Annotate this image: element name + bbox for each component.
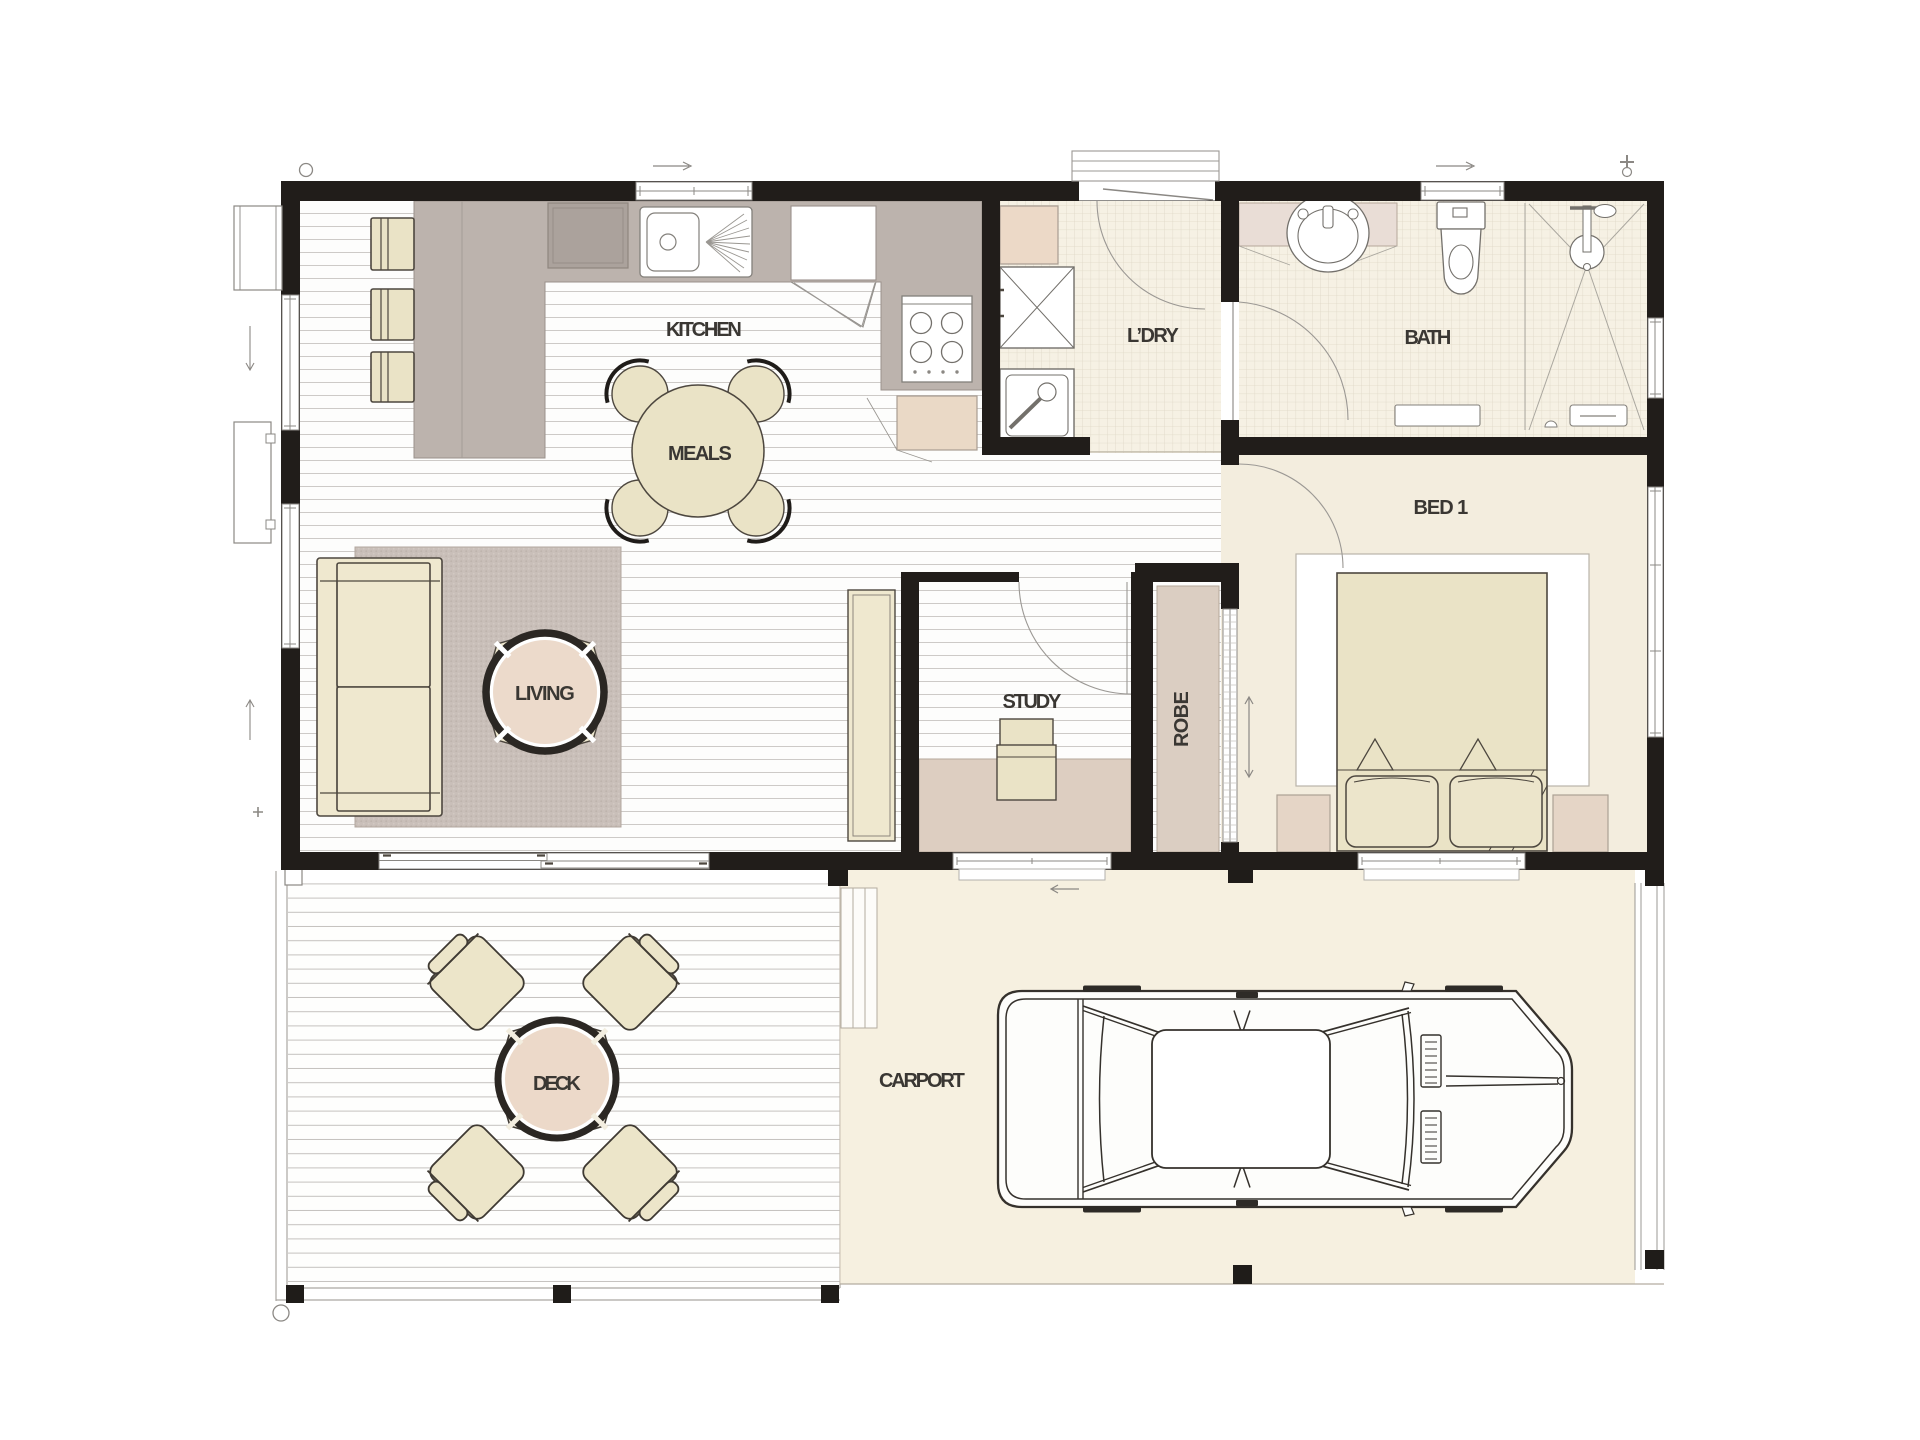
svg-text:LIVING: LIVING — [515, 683, 575, 705]
svg-text:BED 1: BED 1 — [1414, 497, 1469, 519]
svg-text:DECK: DECK — [533, 1073, 581, 1095]
svg-text:STUDY: STUDY — [1003, 691, 1062, 713]
svg-text:L’DRY: L’DRY — [1127, 325, 1179, 347]
svg-text:BATH: BATH — [1405, 327, 1452, 349]
svg-text:ROBE: ROBE — [1171, 691, 1193, 747]
svg-text:MEALS: MEALS — [668, 443, 732, 465]
svg-text:CARPORT: CARPORT — [879, 1070, 965, 1092]
svg-text:KITCHEN: KITCHEN — [666, 319, 742, 341]
